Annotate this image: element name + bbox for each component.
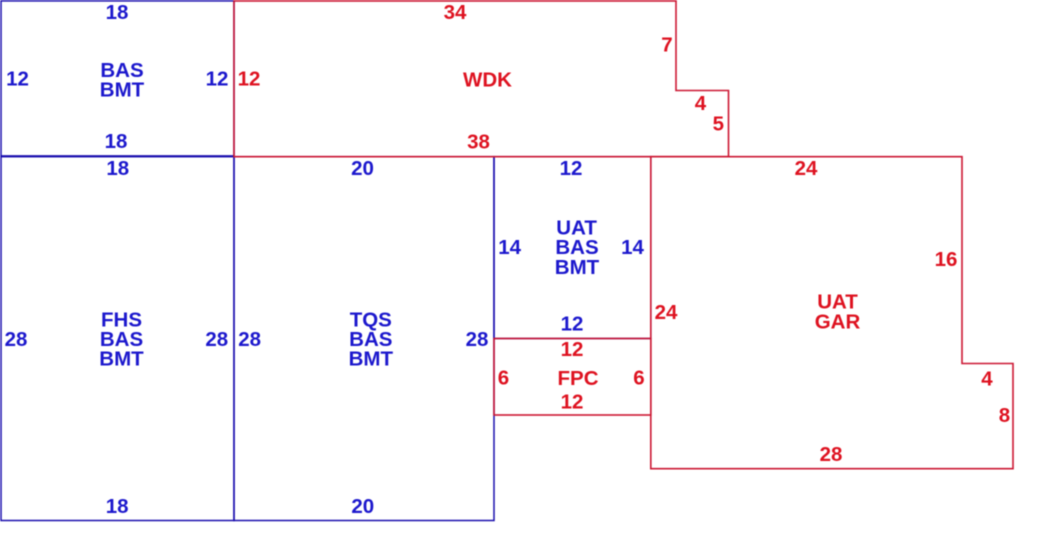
svg-text:WDK: WDK: [463, 69, 512, 92]
svg-text:12: 12: [561, 391, 584, 414]
svg-text:4: 4: [695, 92, 707, 115]
svg-text:12: 12: [6, 68, 29, 91]
svg-text:18: 18: [106, 495, 129, 518]
svg-text:12: 12: [561, 338, 584, 361]
svg-text:12: 12: [560, 157, 583, 180]
svg-text:14: 14: [498, 236, 521, 259]
svg-text:20: 20: [351, 157, 374, 180]
svg-text:4: 4: [981, 368, 993, 391]
svg-text:18: 18: [105, 130, 128, 153]
svg-text:24: 24: [795, 157, 818, 180]
svg-text:28: 28: [205, 328, 228, 351]
svg-text:12: 12: [561, 313, 584, 336]
svg-text:BMT: BMT: [349, 348, 394, 371]
svg-text:34: 34: [444, 1, 467, 24]
svg-text:18: 18: [106, 157, 129, 180]
svg-text:16: 16: [935, 248, 958, 271]
svg-text:BMT: BMT: [99, 348, 144, 371]
svg-text:7: 7: [661, 34, 672, 57]
svg-text:12: 12: [206, 68, 229, 91]
svg-text:20: 20: [351, 495, 374, 518]
svg-text:14: 14: [621, 236, 644, 259]
svg-text:28: 28: [238, 328, 261, 351]
svg-text:24: 24: [655, 301, 678, 324]
svg-text:5: 5: [713, 113, 724, 136]
svg-text:28: 28: [820, 443, 843, 466]
svg-text:28: 28: [466, 328, 489, 351]
svg-text:6: 6: [633, 367, 644, 390]
svg-text:BMT: BMT: [555, 256, 600, 279]
svg-text:6: 6: [498, 367, 509, 390]
svg-text:28: 28: [5, 328, 28, 351]
svg-text:18: 18: [106, 1, 129, 24]
svg-text:BMT: BMT: [100, 79, 145, 102]
svg-text:38: 38: [467, 131, 490, 154]
svg-text:8: 8: [999, 404, 1010, 427]
svg-text:12: 12: [238, 68, 261, 91]
svg-text:GAR: GAR: [815, 311, 861, 334]
svg-text:FPC: FPC: [558, 367, 599, 390]
